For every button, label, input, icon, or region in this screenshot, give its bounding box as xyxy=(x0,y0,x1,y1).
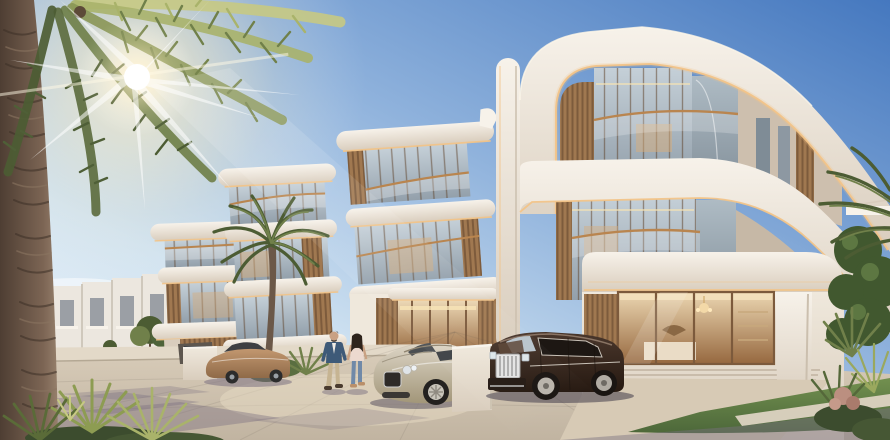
wheel-cap xyxy=(601,380,607,386)
bentley-grille xyxy=(384,372,401,387)
wheel-hub xyxy=(230,375,235,380)
wood-slats xyxy=(312,292,332,335)
chandelier-light xyxy=(696,308,700,312)
render-image: Sunlit render of a luxury villa communit… xyxy=(0,0,890,440)
townhouse-window xyxy=(60,300,74,326)
display-window xyxy=(618,292,774,364)
ceiling-band xyxy=(582,252,842,292)
tree-canopy xyxy=(130,326,150,346)
bentley-headlight xyxy=(403,366,412,375)
townhouse-window xyxy=(90,298,104,326)
flower-mass xyxy=(846,396,860,410)
woman-sandal xyxy=(358,382,365,386)
balcony-slab xyxy=(86,326,108,329)
parapet xyxy=(52,286,82,300)
sun-core xyxy=(124,64,150,90)
bentley-headlight xyxy=(411,365,417,371)
bentley-intake xyxy=(382,392,410,398)
villa-scene: Sunlit render of a luxury villa communit… xyxy=(0,0,890,440)
woman-sandal xyxy=(350,384,357,388)
bentley-spokes xyxy=(429,385,443,399)
person-shadow xyxy=(346,389,368,395)
wall-top-edge xyxy=(183,347,217,348)
hedge-highlight xyxy=(861,263,879,281)
flower-mass xyxy=(829,398,841,410)
wood-slats xyxy=(166,283,181,323)
wood-slats xyxy=(556,196,572,300)
balcony-slab xyxy=(56,326,78,329)
interior-ceiling-light xyxy=(620,294,772,300)
chandelier-light xyxy=(708,308,712,312)
crown-base xyxy=(74,6,86,18)
parapet xyxy=(82,282,112,300)
hedge xyxy=(826,226,890,350)
man-shoe xyxy=(324,386,332,390)
wheel-hub xyxy=(274,374,279,379)
chandelier-body xyxy=(699,303,709,313)
townhouse-window xyxy=(120,296,134,326)
man-head xyxy=(330,332,339,341)
man-shoe xyxy=(335,384,343,388)
woman-leg xyxy=(358,360,362,383)
